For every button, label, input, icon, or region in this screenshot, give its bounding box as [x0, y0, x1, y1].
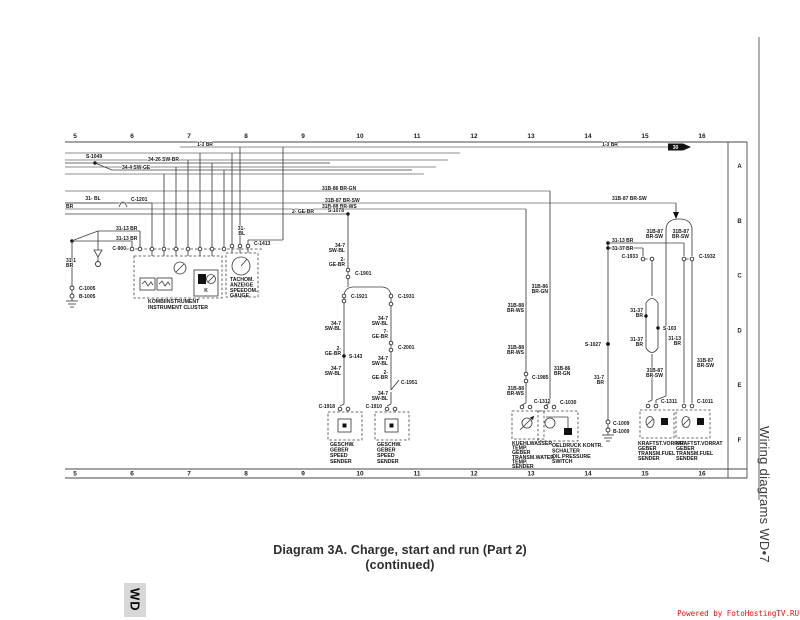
grid-row-letter: A — [737, 164, 742, 170]
wire-label: 1-3 BR — [197, 142, 213, 148]
wire-label: GE-BR — [325, 351, 342, 357]
diagram-caption-line1: Diagram 3A. Charge, start and run (Part … — [100, 543, 700, 557]
grid-col-top: 7 — [187, 133, 191, 140]
grid-col-top: 8 — [244, 133, 248, 140]
wire-label: BR — [674, 341, 682, 347]
component-speedo-gauge — [226, 147, 283, 297]
wire-label: 31-37 BR — [612, 246, 634, 252]
wire-label: 2- GE-BR — [292, 209, 314, 215]
wire-label: BR-GN — [532, 289, 549, 295]
wire-label: BR — [597, 380, 605, 386]
component-label: SENDER — [330, 459, 352, 465]
wire-label: C-1933 — [622, 254, 639, 260]
wire-label: C-1311 — [661, 399, 677, 405]
grid-col-bottom: 12 — [470, 471, 478, 478]
section-tab-wd-text: WD — [128, 588, 143, 612]
grid-col-top: 6 — [130, 133, 134, 140]
grid-col-bottom: 7 — [187, 471, 191, 478]
offpage-arrow-icon — [683, 144, 691, 151]
grid-col-top: 16 — [698, 133, 706, 140]
component-label: SENDER — [377, 459, 399, 465]
grid-row-letter: E — [737, 383, 741, 389]
ground-branch-left — [66, 231, 140, 307]
wire-label: C-1201 — [131, 197, 148, 203]
grid-col-top: 14 — [584, 133, 592, 140]
grid-col-bottom: 8 — [244, 471, 248, 478]
grid-col-bottom: 9 — [301, 471, 305, 478]
grid-col-bottom: 13 — [527, 471, 535, 478]
wire-label: K — [204, 288, 208, 294]
component-label: SENDER — [676, 456, 698, 462]
component-instrument-cluster — [134, 256, 222, 298]
wire-label: GE-BR — [372, 375, 389, 381]
wire-label: C-1910 — [366, 404, 383, 410]
wire-label: BR-WS — [507, 391, 525, 397]
wire-label: BR-GN — [554, 371, 571, 377]
component-label: SWITCH — [552, 459, 573, 465]
component-label: SENDER — [512, 464, 534, 470]
grid-col-top: 13 — [527, 133, 535, 140]
wire-label: SW-BL — [372, 361, 388, 367]
grid-col-bottom: 11 — [414, 471, 421, 478]
bus-wires — [65, 144, 691, 216]
wire-label: BR — [636, 342, 644, 348]
wire-label: C-1011 — [697, 399, 713, 405]
wire-label: BR-SW — [672, 234, 689, 240]
component-label: INSTRUMENT CLUSTER — [148, 305, 208, 311]
grid-row-letter: F — [738, 438, 742, 444]
component-label: GAUGE — [230, 293, 250, 299]
wire-label: BR — [66, 263, 74, 269]
grid-col-bottom: 6 — [130, 471, 134, 478]
wire-label: BR-SW — [646, 234, 663, 240]
wire-label: BL — [238, 231, 245, 237]
wire-label: 34-26 SW-BR — [148, 157, 179, 163]
wire-label: C-1030 — [560, 400, 577, 406]
wire-label: C-1951 — [401, 380, 418, 386]
wire-label: C-1413 — [254, 241, 271, 247]
wire-label: 1-3 BR — [602, 142, 618, 148]
wire-label: BR-WS — [507, 308, 525, 314]
wire-label: BR-WS — [507, 350, 525, 356]
wire-label: 31-13 BR — [116, 236, 138, 242]
wire-label: B-1005 — [79, 294, 96, 300]
wire-label: SW-BL — [325, 371, 341, 377]
wire-label: SW-BL — [372, 396, 388, 402]
wire-label: BR — [66, 204, 74, 210]
wire-label: C-1312 — [534, 399, 551, 405]
grid-col-bottom: 14 — [584, 471, 592, 478]
wire-label: GE-BR — [329, 262, 346, 268]
wire-label: C-1931 — [398, 294, 415, 300]
wire-label: BR-SW — [646, 373, 663, 379]
wire-labels: 1-3 BR1-3 BRS-104934-26 SW-BR34-4 SW-GE3… — [66, 142, 716, 435]
grid-row-letter: C — [737, 274, 742, 280]
wire-label: S-103 — [663, 326, 677, 332]
grid-col-top: 12 — [470, 133, 478, 140]
wire-label: C-1918 — [319, 404, 336, 410]
wire-label: BR-SW — [697, 363, 714, 369]
wire-label: 31B-87 BR-SW — [612, 196, 647, 202]
wire-label: 31-13 BR — [116, 226, 138, 232]
wire-label: C-1901 — [355, 271, 372, 277]
wire-label: C-1932 — [699, 254, 716, 260]
wire-label: 31B-86 BR-GN — [322, 186, 357, 192]
component-label: SENDER — [638, 456, 660, 462]
diagram-frame — [65, 37, 759, 500]
offpage-arrow-label: 30 — [673, 145, 679, 151]
grid-row-letter: D — [737, 328, 742, 334]
wire-label: BR — [636, 313, 644, 319]
wire-label: 31-13 BR — [612, 238, 634, 244]
grid-col-top: 5 — [73, 133, 77, 140]
wire-label: C-1921 — [351, 294, 368, 300]
wire-label: SW-BL — [325, 326, 341, 332]
wiring-diagram-canvas: 55667788991010111112121313141415151616AB… — [0, 0, 800, 620]
grid-col-bottom: 5 — [73, 471, 77, 478]
wire-label: S-1027 — [585, 342, 601, 348]
wire-label: S-1078 — [328, 208, 344, 214]
branch-ground-right — [602, 241, 614, 441]
page-side-label: Wiring diagrams WD•7 — [757, 426, 772, 586]
grid-col-bottom: 10 — [356, 471, 364, 478]
wire-label: C-2001 — [398, 345, 415, 351]
wire-label: 34-4 SW-GE — [122, 165, 151, 171]
wire-label: SW-BL — [329, 248, 345, 254]
wire-label: S-143 — [349, 354, 363, 360]
grid-col-top: 15 — [641, 133, 649, 140]
grid-col-bottom: 16 — [698, 471, 706, 478]
wire-label: B-1009 — [613, 429, 630, 435]
wire-label: C-1005 — [79, 286, 96, 292]
wire-label: GE-BR — [372, 334, 389, 340]
component-labels: KOMBIINSTRUMENTINSTRUMENT CLUSTERTACHOM.… — [148, 277, 723, 470]
grid-row-letter: B — [737, 219, 742, 225]
wire-label: C-1009 — [613, 421, 630, 427]
wire-label: C-900 — [112, 246, 126, 252]
watermark-text: Powered by FotoHostingTV.RU — [677, 609, 799, 618]
wire-label: S-1049 — [86, 154, 102, 160]
grid-col-top: 10 — [356, 133, 364, 140]
grid-col-top: 9 — [301, 133, 305, 140]
diagram-caption-line2: (continued) — [100, 558, 700, 572]
section-tab-wd: WD — [124, 583, 146, 617]
wire-label: SW-BL — [372, 321, 388, 327]
wire-label: C-1985 — [532, 375, 549, 381]
wire-label: 31- BL — [85, 196, 100, 202]
grid-col-top: 11 — [414, 133, 421, 140]
grid-col-bottom: 15 — [641, 471, 649, 478]
